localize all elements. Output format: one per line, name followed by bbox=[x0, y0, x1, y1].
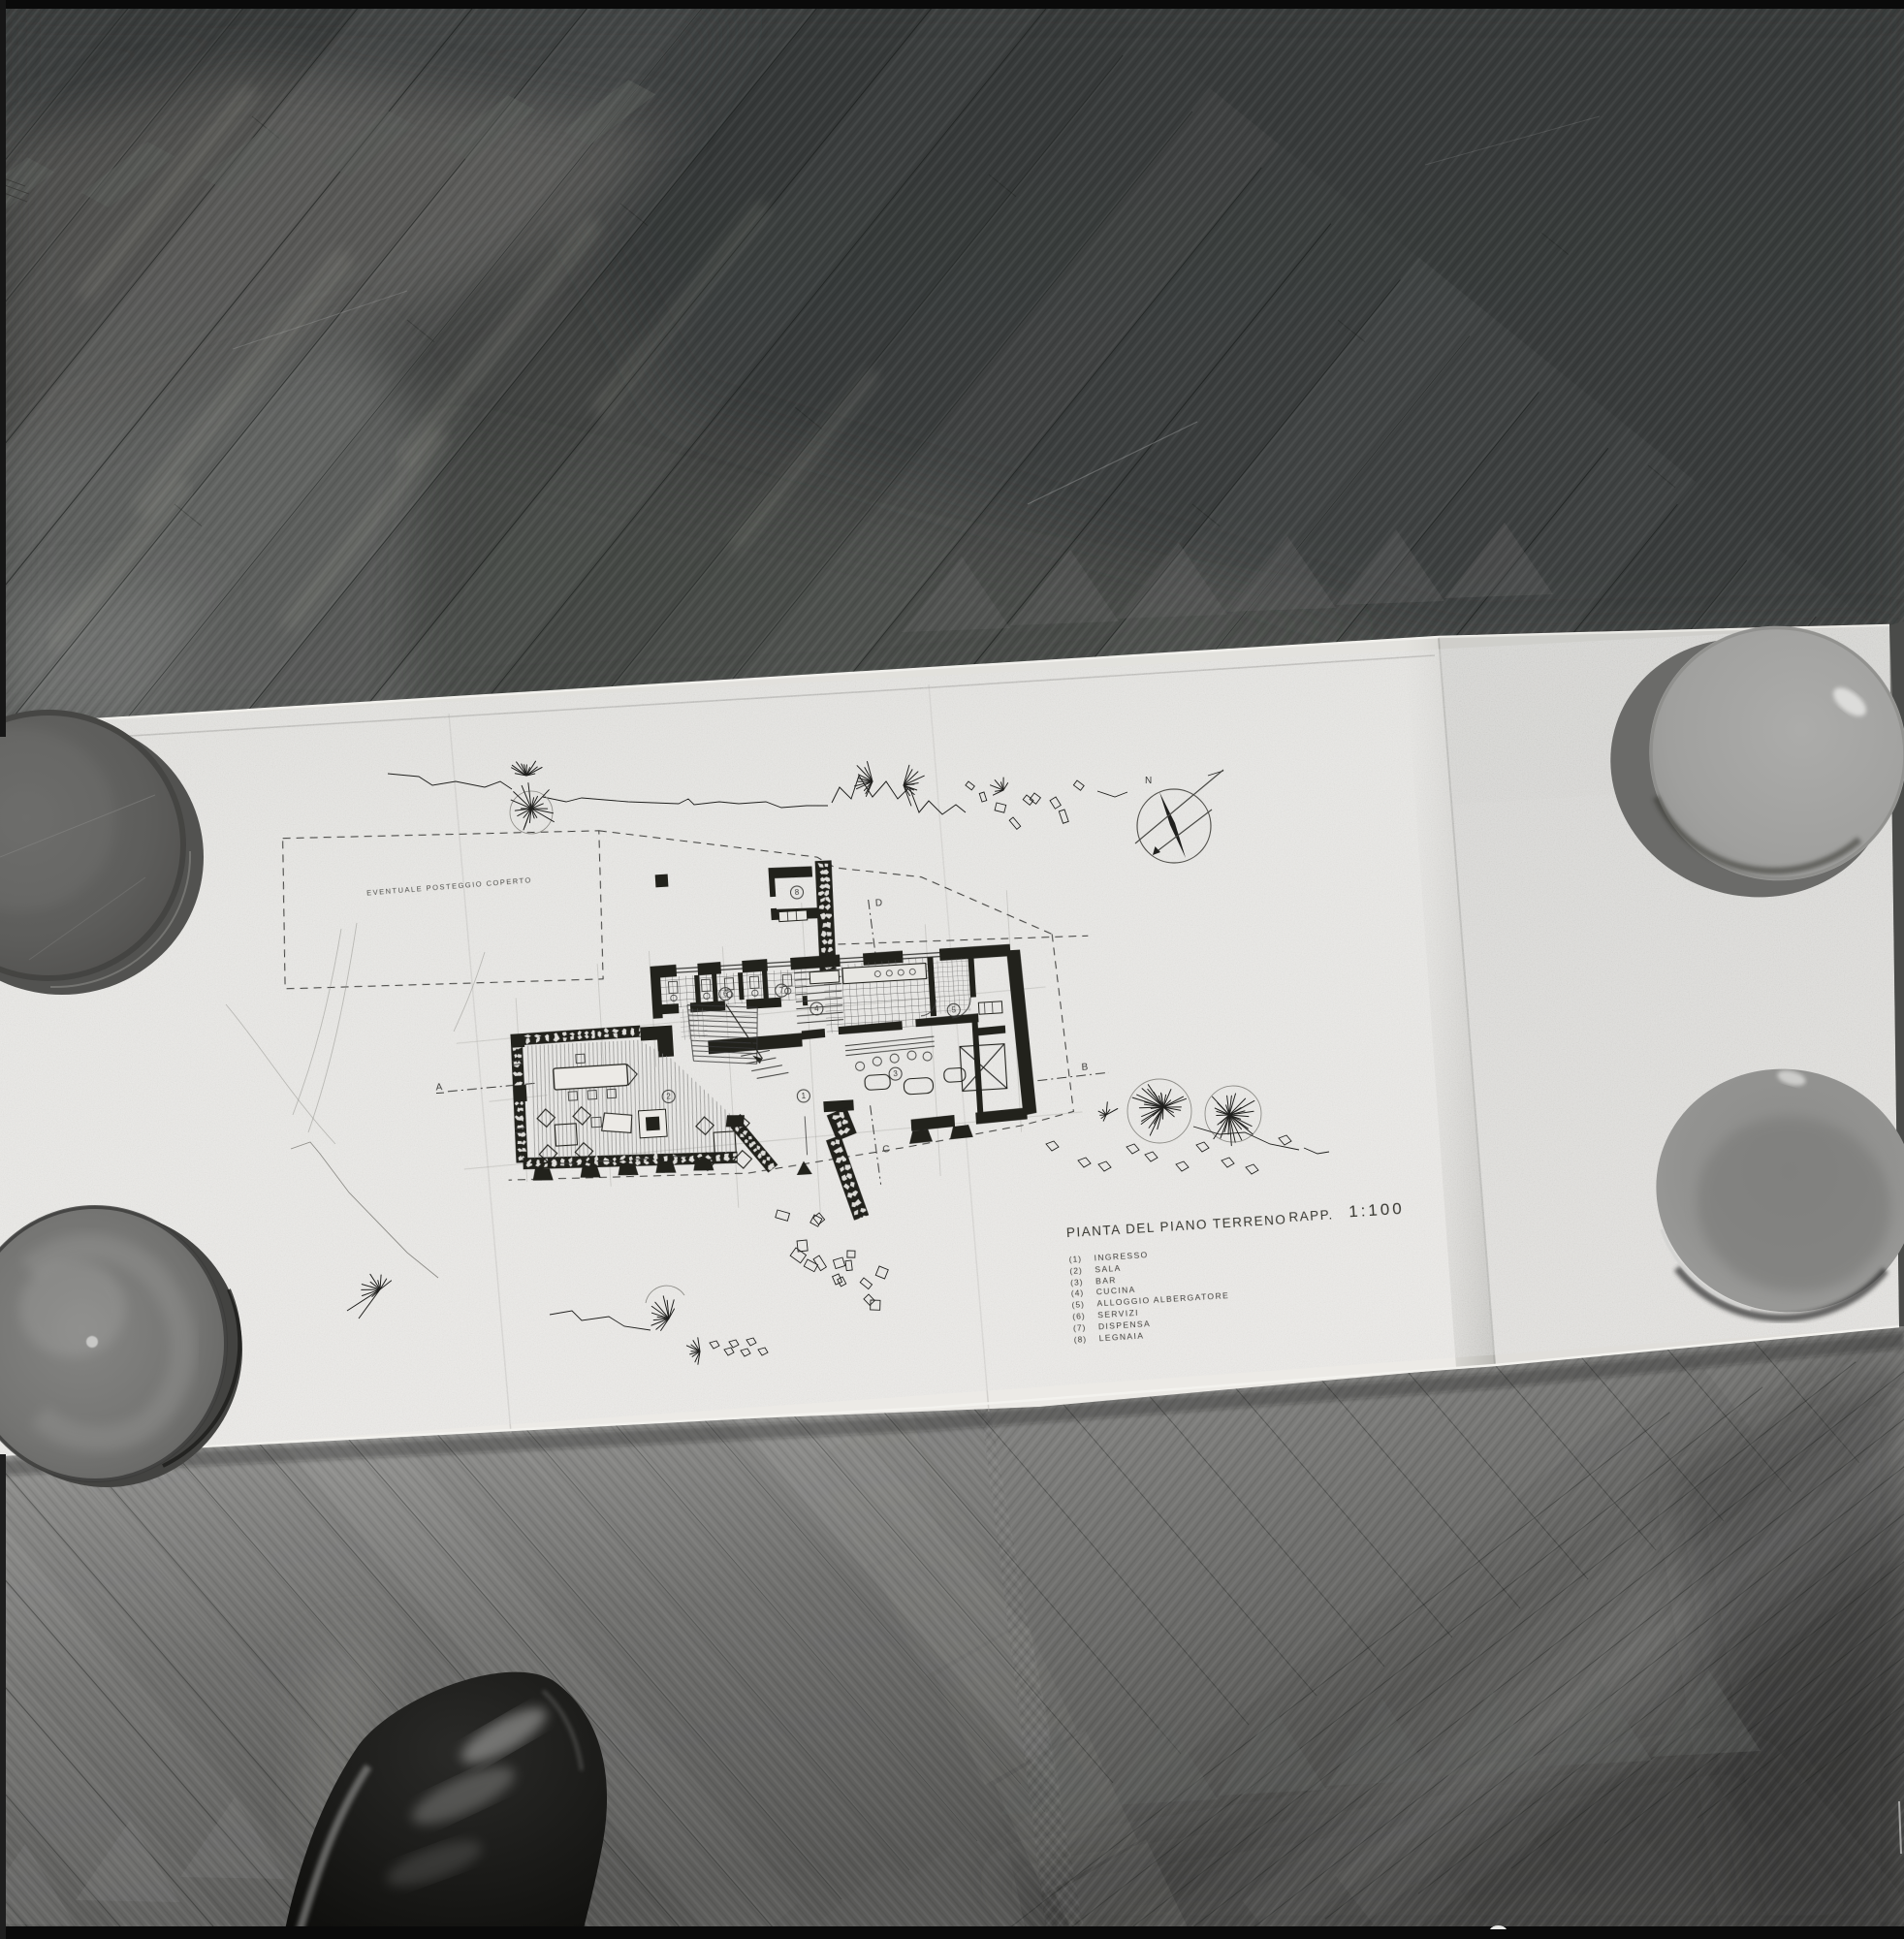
svg-text:(4): (4) bbox=[1071, 1287, 1085, 1298]
svg-text:D: D bbox=[875, 898, 883, 908]
svg-text:(6): (6) bbox=[1072, 1311, 1086, 1321]
svg-text:B: B bbox=[1081, 1062, 1089, 1072]
svg-text:A: A bbox=[435, 1082, 443, 1093]
svg-text:(3): (3) bbox=[1070, 1277, 1084, 1287]
svg-text:SALA: SALA bbox=[1095, 1263, 1122, 1275]
svg-text:C: C bbox=[882, 1144, 890, 1155]
svg-text:(1): (1) bbox=[1068, 1254, 1082, 1264]
svg-text:BAR: BAR bbox=[1095, 1275, 1117, 1286]
svg-text:(8): (8) bbox=[1073, 1334, 1087, 1345]
svg-text:N: N bbox=[1145, 776, 1152, 786]
svg-text:RAPP.: RAPP. bbox=[1288, 1207, 1334, 1224]
svg-text:1:100: 1:100 bbox=[1349, 1199, 1406, 1221]
svg-text:(7): (7) bbox=[1073, 1322, 1087, 1333]
svg-text:(2): (2) bbox=[1069, 1265, 1083, 1276]
svg-text:(5): (5) bbox=[1071, 1299, 1085, 1310]
